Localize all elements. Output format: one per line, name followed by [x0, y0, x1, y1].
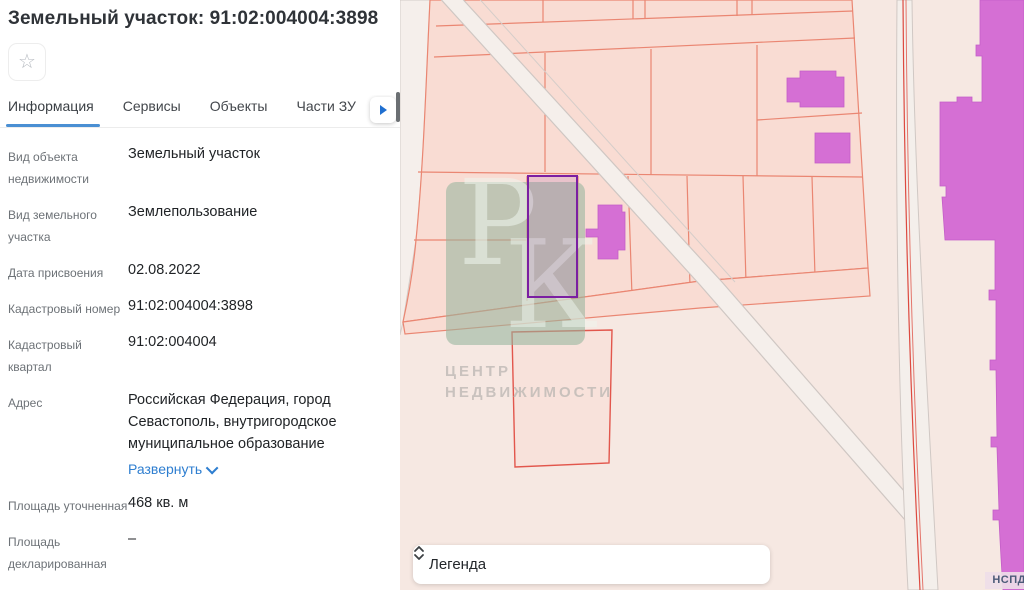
- field-row: Кадастровый квартал91:02:004004: [8, 331, 392, 378]
- legend-toggle[interactable]: Легенда: [413, 545, 770, 584]
- watermark-line1: ЦЕНТР: [445, 361, 613, 382]
- field-label: Дата присвоения: [8, 259, 128, 284]
- cadastral-map[interactable]: Р К ЦЕНТР НЕДВИЖИМОСТИ Легенда НСПД: [400, 0, 1024, 590]
- tabs-scroll-right-button[interactable]: [370, 97, 396, 123]
- expand-address-link[interactable]: Развернуть: [128, 458, 218, 480]
- app: Земельный участок: 91:02:004004:3898 ☆ И…: [0, 0, 1024, 590]
- field-value: Российская Федерация, город Севастополь,…: [128, 389, 373, 481]
- field-value: 91:02:004004:3898: [128, 295, 373, 320]
- field-label: Площадь декларированная: [8, 528, 128, 575]
- legend-label: Легенда: [429, 556, 756, 573]
- tab-объекты[interactable]: Объекты: [210, 95, 268, 127]
- field-label: Вид земельного участка: [8, 201, 128, 248]
- field-row: Кадастровый номер91:02:004004:3898: [8, 295, 392, 320]
- field-value: 468 кв. м: [128, 492, 373, 517]
- tab-сервисы[interactable]: Сервисы: [123, 95, 181, 127]
- watermark-text: ЦЕНТР НЕДВИЖИМОСТИ: [445, 361, 613, 403]
- tab-bar: ИнформацияСервисыОбъектыЧасти ЗУСостав: [0, 95, 400, 128]
- field-row: Вид земельного участкаЗемлепользование: [8, 201, 392, 248]
- field-row: Вид объекта недвижимостиЗемельный участо…: [8, 143, 392, 190]
- star-icon: ☆: [18, 52, 36, 72]
- field-row: АдресРоссийская Федерация, город Севасто…: [8, 389, 392, 481]
- field-row: Дата присвоения02.08.2022: [8, 259, 392, 284]
- field-label: Площадь уточненная: [8, 492, 128, 517]
- arrow-right-icon: [380, 105, 387, 115]
- building-2: [815, 133, 850, 163]
- favorite-button[interactable]: ☆: [8, 43, 46, 81]
- field-label: Адрес: [8, 389, 128, 481]
- page-title: Земельный участок: 91:02:004004:3898: [8, 8, 400, 30]
- chevron-down-icon: [206, 461, 219, 474]
- info-panel: Земельный участок: 91:02:004004:3898 ☆ И…: [0, 0, 400, 590]
- tab-информация[interactable]: Информация: [8, 95, 94, 127]
- watermark-line2: НЕДВИЖИМОСТИ: [445, 382, 613, 403]
- field-value: –: [128, 528, 373, 575]
- field-value: Землепользование: [128, 201, 373, 248]
- selected-parcel[interactable]: [527, 175, 578, 298]
- nspd-badge: НСПД: [985, 572, 1024, 589]
- field-value: 91:02:004004: [128, 331, 373, 378]
- field-row: Площадь уточненная468 кв. м: [8, 492, 392, 517]
- field-label: Вид объекта недвижимости: [8, 143, 128, 190]
- field-label: Площадь: [8, 586, 128, 590]
- field-label: Кадастровый номер: [8, 295, 128, 320]
- field-value: 02.08.2022: [128, 259, 373, 284]
- field-label: Кадастровый квартал: [8, 331, 128, 378]
- tab-части-зу[interactable]: Части ЗУ: [296, 95, 355, 127]
- field-row: Площадь декларированная–: [8, 528, 392, 575]
- field-value: Земельный участок: [128, 143, 373, 190]
- field-row: Площадь–: [8, 586, 392, 590]
- field-value: –: [128, 586, 373, 590]
